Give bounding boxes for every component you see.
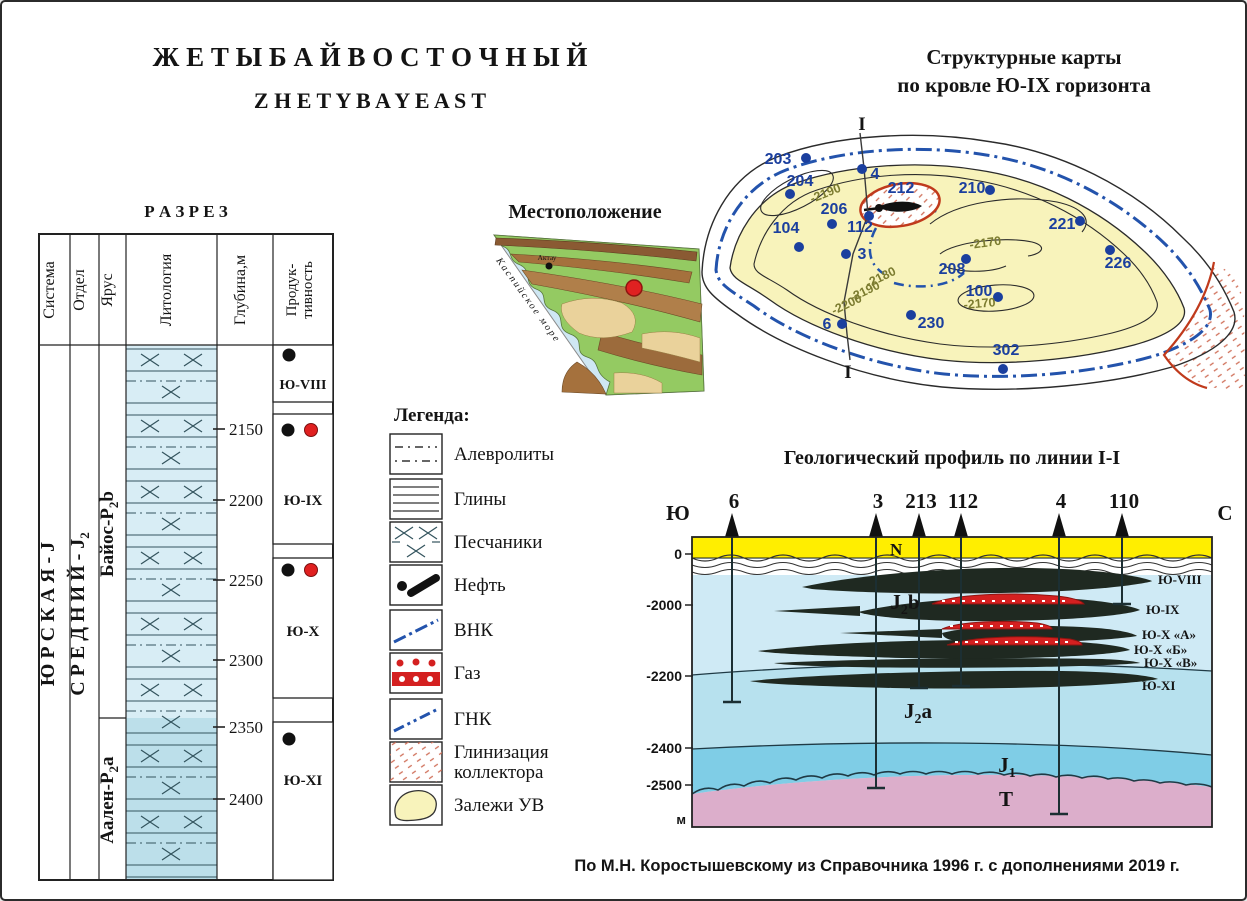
profile-title: Геологический профиль по линии I-I	[784, 447, 1121, 469]
horizon-yu11-label: Ю-XI	[284, 773, 323, 789]
lens-label-yu9: Ю-IX	[1146, 602, 1180, 617]
geological-figure: Ж Е Т Ы Б А Й В О С Т О Ч Н Ы Й Z H E T …	[0, 0, 1247, 901]
well-dot-104	[794, 242, 804, 252]
legend-label-oil: Нефть	[454, 575, 506, 596]
depth-label-2000: -2000	[646, 597, 682, 613]
well-dot-302	[998, 364, 1008, 374]
legend-swatch-shaling	[390, 742, 442, 782]
north-label: С	[1217, 501, 1232, 525]
main-title-ru: Ж Е Т Ы Б А Й В О С Т О Ч Н Ы Й	[153, 42, 588, 72]
depth-label-2400: -2400	[646, 740, 682, 756]
well-label-203: 203	[765, 151, 792, 168]
series-label-sub: 2	[77, 532, 92, 539]
depth-tick-2150: 2150	[229, 420, 263, 439]
well-label-230: 230	[918, 315, 945, 332]
legend-swatch-oil	[390, 565, 442, 605]
well-label-226: 226	[1105, 255, 1132, 272]
horizon-yu10-label: Ю-X	[287, 624, 320, 640]
well-label-204: 204	[787, 173, 814, 190]
well-dot-3	[841, 249, 851, 259]
profile-well-label-3: 3	[873, 489, 884, 513]
legend-swatch-gas	[390, 653, 442, 693]
oil-dot-yu10	[282, 564, 295, 577]
section-label-bottom: I	[844, 362, 851, 383]
meters-label: м	[676, 812, 686, 827]
profile-well-triangles	[725, 513, 1129, 537]
productivity-boxes	[273, 345, 333, 880]
stage-aalenian-label: Аален-Р2a	[97, 756, 121, 844]
gas-dot-yu9	[305, 424, 318, 437]
structural-map: I I 203 204 4 212 210 206 112 104 3 221 …	[702, 114, 1245, 391]
header-lithology: Литология	[158, 253, 175, 326]
legend: Легенда: Алевролиты Глины Песчаники	[390, 405, 554, 825]
well-label-206: 206	[821, 201, 848, 218]
header-productivity-line1: Продук-	[284, 264, 300, 317]
well-dot-221	[1075, 216, 1085, 226]
lens-label-yu10a: Ю-X «А»	[1142, 627, 1196, 642]
depth-tick-2200: 2200	[229, 491, 263, 510]
well-label-112: 112	[847, 219, 873, 236]
legend-label-owc: ВНК	[454, 620, 493, 641]
well-dot-230	[906, 310, 916, 320]
legend-label-gas: Газ	[454, 663, 480, 684]
gas-dot-yu10	[305, 564, 318, 577]
legend-swatch-owc	[390, 610, 442, 650]
depth-label-2500: -2500	[646, 777, 682, 793]
structural-map-title-line2: по кровле Ю-IX горизонта	[897, 73, 1151, 97]
figure-canvas: Ж Е Т Ы Б А Й В О С Т О Ч Н Ы Й Z H E T …	[2, 2, 1247, 901]
well-dot-204	[785, 189, 795, 199]
legend-label-sandstone: Песчаники	[454, 532, 542, 553]
legend-swatch-sandstone	[390, 522, 442, 562]
lens-label-yu11: Ю-XI	[1142, 678, 1175, 693]
header-productivity-line2: тивность	[300, 261, 316, 319]
depth-label-0: 0	[674, 546, 682, 562]
series-label-main: С Р Е Д Н И Й - J	[66, 539, 89, 696]
profile-well-label-4: 4	[1056, 489, 1067, 513]
oil-dot-yu11	[283, 733, 296, 746]
unit-j2b-main: J	[890, 590, 901, 614]
depth-tick-2350: 2350	[229, 718, 263, 737]
profile-well-label-213: 213	[905, 489, 937, 513]
well-dot-210	[985, 185, 995, 195]
unit-j2a-sub: 2	[915, 712, 922, 727]
stage-bottom-main: Аален-Р	[97, 772, 118, 844]
stage-top-post: b	[97, 491, 118, 502]
depth-tick-2250: 2250	[229, 571, 263, 590]
well-dot-6	[837, 319, 847, 329]
horizon-yu8-label: Ю-VIII	[280, 378, 327, 393]
well-dot-203	[801, 153, 811, 163]
well-label-302: 302	[993, 342, 1020, 359]
neogene-label: N	[890, 540, 903, 559]
header-system: Система	[41, 261, 58, 319]
city-dot	[546, 263, 553, 270]
unit-j2a-main: J	[904, 699, 915, 723]
south-label: Ю	[666, 501, 690, 525]
oil-dot-yu9	[282, 424, 295, 437]
city-label: Актау	[537, 253, 556, 262]
legend-label-clay: Глины	[454, 489, 506, 510]
stage-top-main: Байос-Р	[97, 508, 118, 577]
contour-label-2170b: -2170	[963, 295, 996, 312]
well-label-210: 210	[959, 180, 986, 197]
unit-t-label: T	[999, 787, 1013, 811]
unit-j2a-post: a	[922, 699, 933, 723]
legend-label-shaling-line1: Глинизация	[454, 742, 549, 763]
legend-label-hc-deposits: Залежи УВ	[454, 795, 544, 816]
lens-label-yu8: Ю-VIII	[1158, 572, 1202, 587]
legend-title: Легенда:	[394, 405, 470, 426]
well-label-212: 212	[888, 180, 915, 197]
header-depth: Глубина,м	[232, 255, 249, 325]
well-label-104: 104	[773, 220, 800, 237]
legend-label-goc: ГНК	[454, 709, 492, 730]
profile-well-label-110: 110	[1109, 489, 1139, 513]
well-label-221: 221	[1049, 216, 1076, 233]
unit-j2b-post: b	[908, 590, 920, 614]
location-map: Каспийское море Актау	[493, 235, 704, 395]
attribution: По М.Н. Коростышевскому из Справочника 1…	[574, 857, 1179, 875]
well-label-208: 208	[939, 261, 966, 278]
oil-dot-212	[875, 204, 883, 212]
legend-swatch-clay	[390, 479, 442, 519]
depth-tick-2400: 2400	[229, 790, 263, 809]
strat-column: Система Отдел Ярус Литология Глубина,м П…	[37, 234, 333, 880]
well-dot-226	[1105, 245, 1115, 255]
profile-well-label-6: 6	[729, 489, 740, 513]
structural-map-title-line1: Структурные карты	[926, 45, 1121, 69]
header-series: Отдел	[71, 269, 88, 311]
legend-label-shaling-line2: коллектора	[454, 762, 544, 783]
well-label-4: 4	[871, 166, 880, 183]
profile-well-label-112: 112	[948, 489, 978, 513]
stage-bajocian-label: Байос-Р2b	[97, 491, 121, 577]
stage-bottom-post: a	[97, 756, 118, 766]
unit-j1-sub: 1	[1009, 766, 1016, 781]
well-dot-4	[857, 164, 867, 174]
legend-label-siltstone: Алевролиты	[454, 444, 554, 465]
strat-column-title: Р А З Р Е З	[144, 202, 228, 221]
depth-label-2200: -2200	[646, 668, 682, 684]
field-location-dot	[626, 280, 642, 296]
legend-swatch-goc	[390, 699, 442, 739]
section-label-top: I	[858, 114, 865, 135]
series-label: С Р Е Д Н И Й - J2	[66, 532, 92, 696]
legend-swatch-hc-deposits	[390, 785, 442, 825]
well-label-3: 3	[858, 246, 867, 263]
main-title-en: Z H E T Y B A Y E A S T	[254, 88, 486, 113]
geological-profile: Геологический профиль по линии I-I	[646, 447, 1232, 827]
well-dot-206	[827, 219, 837, 229]
well-label-6: 6	[823, 316, 832, 333]
band-neogene	[692, 537, 1212, 558]
header-stage: Ярус	[99, 273, 116, 307]
system-label: Ю Р С К А Я - J	[37, 542, 59, 686]
horizon-yu9-label: Ю-IX	[284, 493, 323, 509]
location-map-title: Местоположение	[508, 201, 661, 223]
legend-swatch-siltstone	[390, 434, 442, 474]
depth-tick-2300: 2300	[229, 651, 263, 670]
lithology-pattern	[126, 345, 217, 880]
lens-label-yu10v: Ю-X «В»	[1144, 655, 1197, 670]
unit-j1-main: J	[998, 753, 1009, 777]
oil-dot-yu8	[283, 349, 296, 362]
unit-j2b-sub: 2	[901, 603, 908, 618]
